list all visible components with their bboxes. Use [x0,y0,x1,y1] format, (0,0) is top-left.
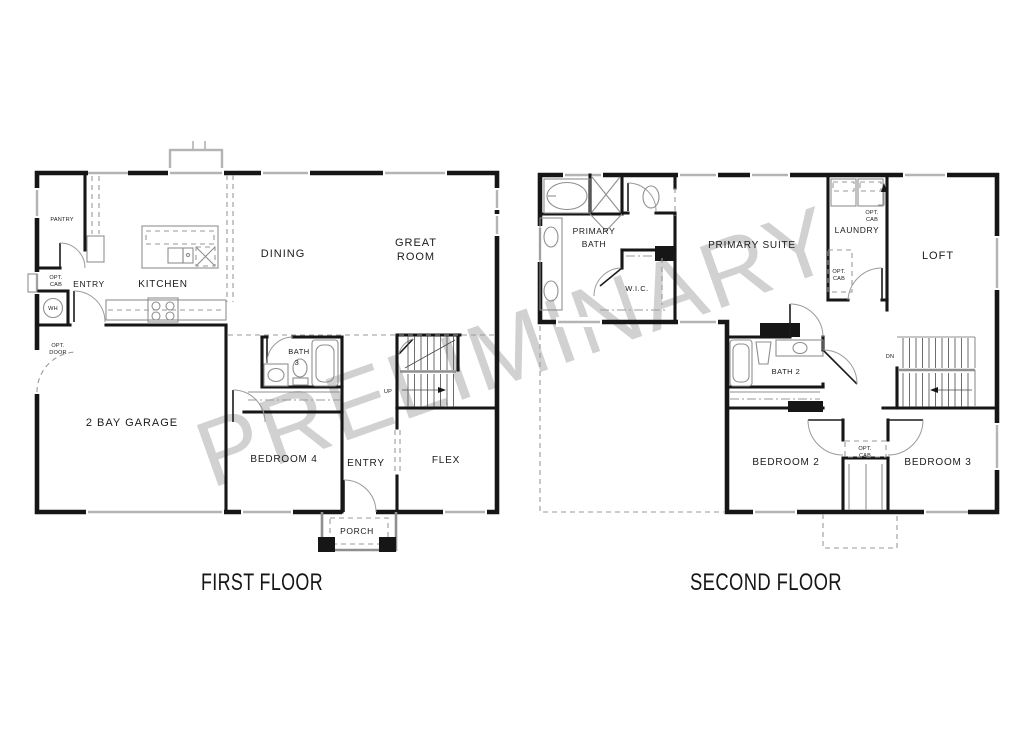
bath3-label: BATH [288,347,309,356]
washer [831,179,856,206]
svg-text:CAB: CAB [859,453,871,459]
svg-text:CAB: CAB [833,276,845,282]
bedroom3-label: BEDROOM 3 [904,457,971,468]
dn-arrow [930,387,938,393]
svg-text:3: 3 [295,358,300,367]
entry-rear-label: ENTRY [73,279,105,289]
first-floor-title: FIRST FLOOR [201,569,323,596]
opt-cab-label: OPT. [49,275,62,281]
entry-cabinet [87,236,104,262]
dn-label: DN [886,354,894,360]
bedroom2-label: BEDROOM 2 [752,457,819,468]
bedroom4-label: BEDROOM 4 [250,454,317,465]
primary-suite-label: PRIMARY SUITE [708,240,796,251]
entry-front-label: ENTRY [347,458,385,469]
dining-label: DINING [261,248,306,260]
porch-post [318,537,335,552]
svg-text:BATH: BATH [582,239,606,249]
porch-post [379,537,396,552]
wh-label: WH [48,306,58,312]
roof-tick-lines [193,141,205,150]
kitchen-counter [106,298,226,322]
wic-label: W.I.C. [625,284,648,293]
shower [592,177,620,212]
laundry-label: LAUNDRY [835,225,880,235]
opt-cab-laundry-label: OPT. [865,210,878,216]
water-heater: WH [44,299,63,318]
svg-text:CAB: CAB [866,217,878,223]
opt-cab-hall-label: OPT. [832,269,845,275]
up-label: UP [384,389,392,395]
svg-text:ROOM: ROOM [397,251,435,263]
floor-plan-sheet: PRELIMINARY [0,0,1020,737]
primary-bath-label: PRIMARY [573,226,616,236]
bath2-toilet [756,342,771,364]
pantry-label: PANTRY [50,217,73,223]
bath2-door [823,350,857,384]
opt-door-label: OPT. [51,343,64,349]
optional-patio-outline [823,514,897,548]
floor-plan-drawing: PRELIMINARY [0,0,1020,737]
dryer [858,179,883,206]
garage-label: 2 BAY GARAGE [86,417,178,429]
great-room-label: GREAT [395,237,437,249]
second-floor-title: SECOND FLOOR [690,569,842,596]
kitchen-sink [168,248,183,263]
stairs-2f [897,337,975,407]
optional-garage-door-swing [37,352,77,392]
loft-label: LOFT [922,250,954,262]
kitchen-island [142,226,218,268]
opt-cab-bedroom-label: OPT. [858,446,871,452]
kitchen-label: KITCHEN [138,279,188,290]
svg-text:DOOR: DOOR [49,350,67,356]
porch-label: PORCH [340,526,374,536]
bath2-label: BATH 2 [772,367,801,376]
flex-label: FLEX [432,455,460,466]
svg-text:CAB: CAB [50,282,62,288]
